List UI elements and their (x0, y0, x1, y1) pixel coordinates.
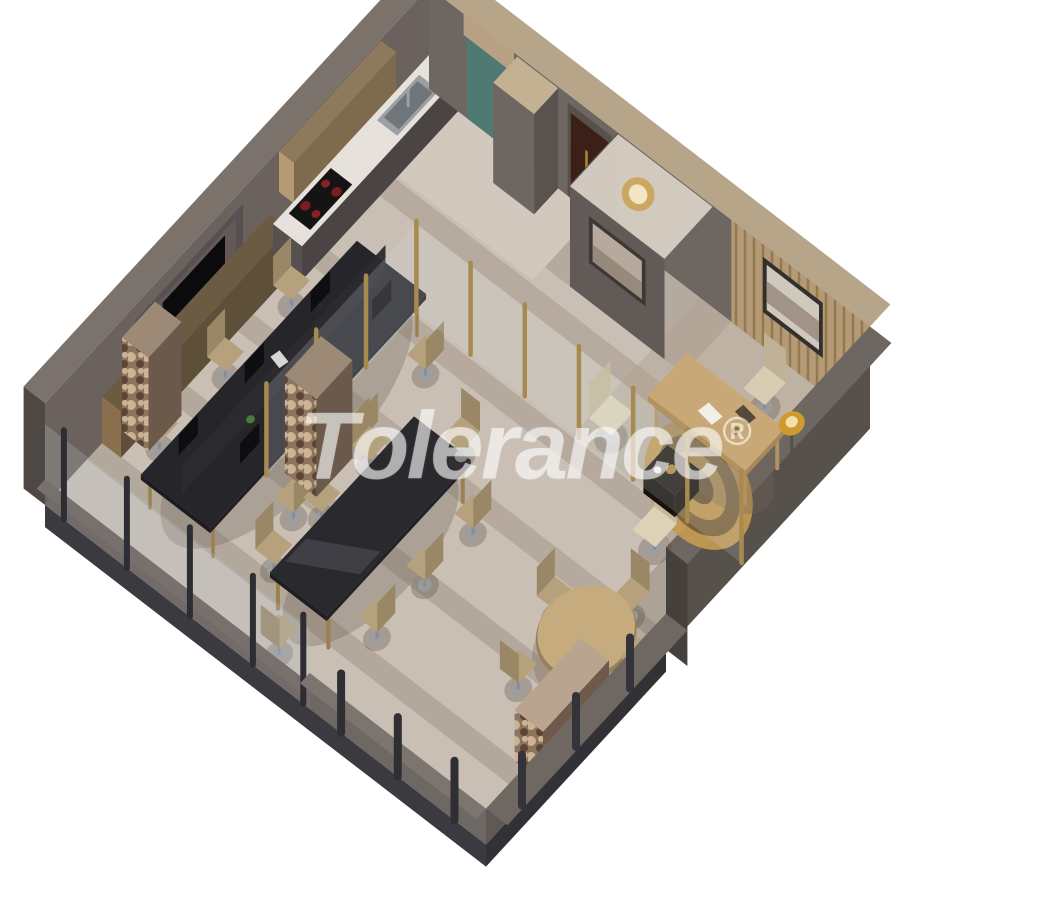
floorplan-stage: Tolerance® (0, 0, 1058, 900)
isometric-floorplan (0, 0, 1058, 900)
